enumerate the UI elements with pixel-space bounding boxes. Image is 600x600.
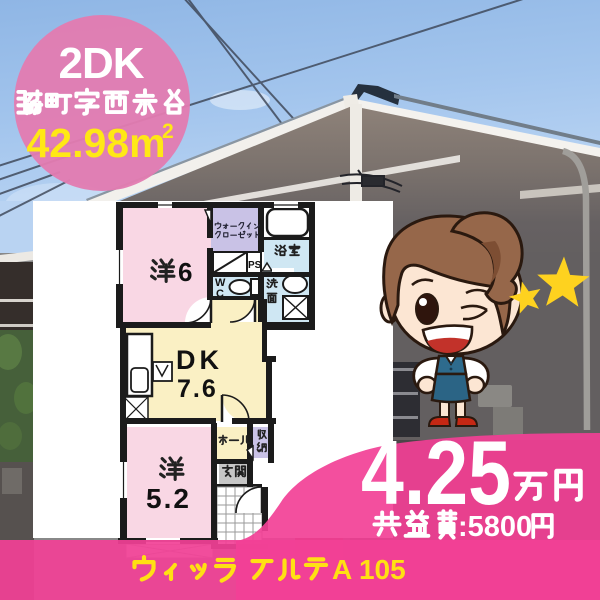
svg-text:42.98m: 42.98m xyxy=(26,120,165,166)
svg-text:2: 2 xyxy=(162,120,174,143)
svg-text:6: 6 xyxy=(178,257,192,287)
svg-text:7.6: 7.6 xyxy=(177,375,218,403)
svg-text:2DK: 2DK xyxy=(58,39,144,88)
svg-text:PS: PS xyxy=(248,260,262,271)
svg-text:DK: DK xyxy=(176,345,223,375)
svg-text:A 105: A 105 xyxy=(332,554,406,585)
svg-text::5800: :5800 xyxy=(458,511,532,543)
svg-text:4.25: 4.25 xyxy=(361,423,511,524)
svg-text:5.2: 5.2 xyxy=(146,483,191,514)
